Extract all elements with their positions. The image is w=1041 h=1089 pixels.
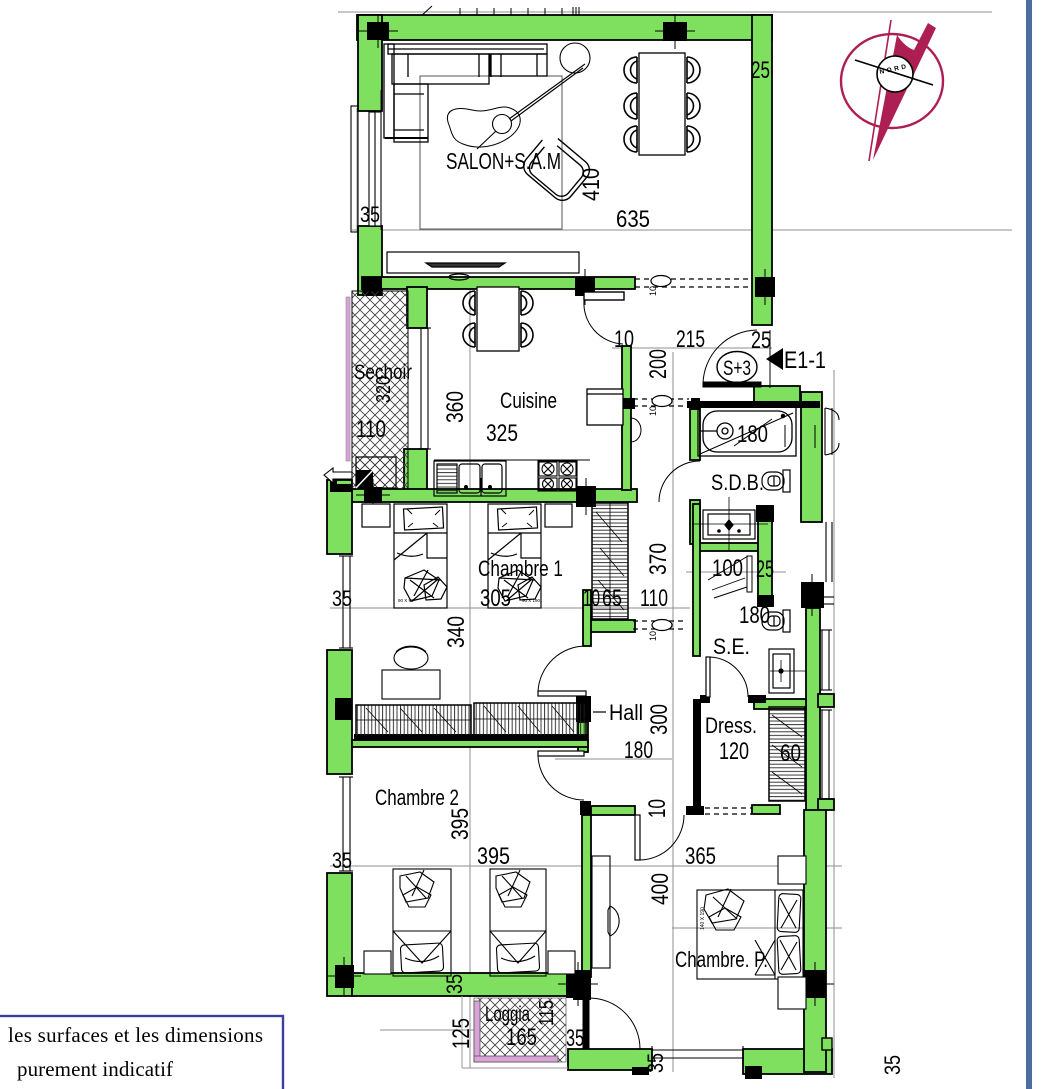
svg-text:325: 325	[486, 420, 518, 447]
svg-text:10: 10	[644, 799, 671, 818]
svg-text:395: 395	[477, 843, 510, 870]
svg-text:35: 35	[566, 1025, 584, 1052]
svg-text:purement indicatif: purement indicatif	[17, 1057, 173, 1081]
svg-text:10: 10	[614, 326, 634, 353]
svg-text:10: 10	[648, 406, 658, 416]
svg-text:395: 395	[447, 808, 474, 840]
svg-text:Hall: Hall	[609, 700, 643, 725]
svg-text:180: 180	[624, 737, 653, 764]
svg-text:635: 635	[616, 206, 650, 233]
svg-text:Loggia: Loggia	[485, 1003, 530, 1026]
svg-text:400: 400	[647, 873, 674, 905]
svg-text:10: 10	[648, 631, 658, 641]
svg-text:35: 35	[643, 1053, 668, 1073]
svg-text:35: 35	[360, 202, 380, 227]
svg-text:115: 115	[536, 1000, 558, 1026]
svg-text:360: 360	[442, 391, 469, 423]
svg-text:Chambre 1: Chambre 1	[478, 556, 563, 581]
svg-text:S.E.: S.E.	[713, 634, 750, 659]
svg-text:35: 35	[332, 586, 352, 611]
svg-text:Cuisine: Cuisine	[500, 388, 557, 413]
svg-text:les surfaces et les dimensions: les surfaces et les dimensions	[8, 1023, 263, 1047]
svg-text:305: 305	[480, 585, 511, 612]
svg-text:60: 60	[780, 740, 801, 767]
svg-text:25: 25	[756, 556, 774, 583]
svg-text:90 X 190: 90 X 190	[522, 598, 541, 603]
svg-text:25: 25	[751, 57, 770, 84]
svg-text:340: 340	[443, 616, 470, 648]
svg-text:S+3: S+3	[723, 357, 751, 380]
svg-text:120: 120	[719, 738, 749, 765]
svg-text:Dress.: Dress.	[705, 713, 757, 738]
svg-text:300: 300	[646, 704, 673, 735]
svg-text:125: 125	[448, 1018, 475, 1049]
svg-text:S.D.B.: S.D.B.	[711, 470, 764, 495]
svg-text:25: 25	[751, 327, 771, 354]
svg-text:35: 35	[332, 848, 352, 873]
svg-text:180: 180	[739, 602, 770, 629]
svg-text:10: 10	[648, 286, 658, 296]
svg-text:10: 10	[583, 585, 600, 612]
svg-text:365: 365	[685, 843, 716, 870]
svg-text:320: 320	[373, 376, 395, 403]
svg-text:35: 35	[880, 1055, 905, 1075]
svg-text:65: 65	[602, 585, 622, 612]
svg-text:110: 110	[356, 416, 386, 443]
svg-text:110: 110	[640, 585, 668, 612]
svg-text:Chambre 2: Chambre 2	[375, 785, 459, 810]
svg-text:410: 410	[578, 168, 605, 201]
svg-text:90 X 90: 90 X 90	[398, 598, 414, 603]
svg-text:E1-1: E1-1	[784, 347, 826, 374]
svg-text:35: 35	[442, 974, 467, 994]
svg-text:215: 215	[676, 326, 705, 353]
svg-text:165: 165	[506, 1024, 537, 1051]
svg-text:SALON+S.A.M: SALON+S.A.M	[446, 148, 561, 174]
svg-text:Chambre. P.: Chambre. P.	[675, 947, 768, 972]
svg-text:200: 200	[645, 349, 672, 379]
svg-text:140 X 190: 140 X 190	[700, 907, 706, 930]
svg-text:370: 370	[645, 543, 672, 575]
